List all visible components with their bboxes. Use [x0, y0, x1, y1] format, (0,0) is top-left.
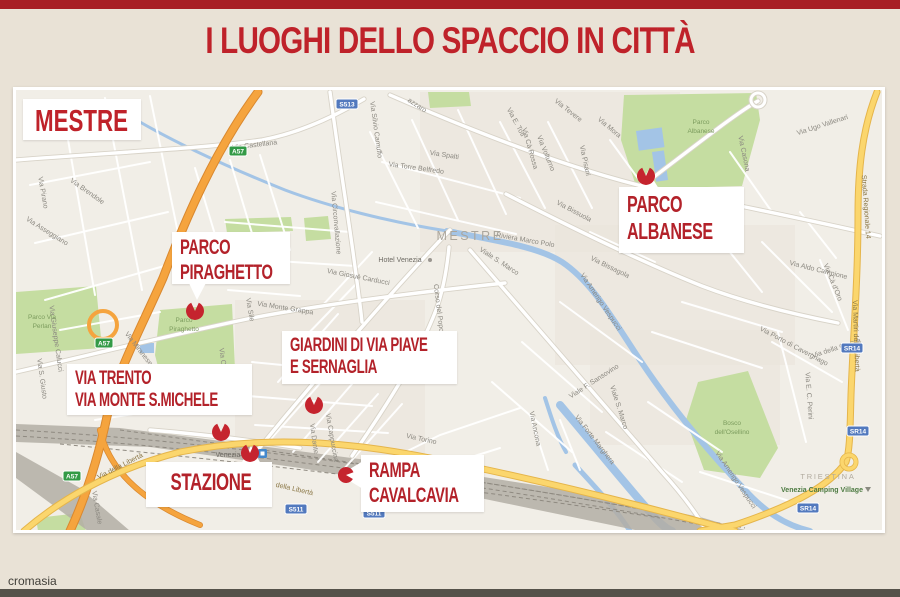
callout-rampa-cavalcavia: RAMPACAVALCAVIA [361, 455, 484, 512]
callout-text: PARCO [180, 236, 251, 261]
top-red-bar [0, 0, 900, 9]
callout-text: E SERNAGLIA [290, 357, 401, 379]
callout-text: STAZIONE [171, 469, 248, 497]
callout-stazione: STAZIONE [146, 462, 272, 507]
callout-giardini-via-piave: GIARDINI DI VIA PIAVEE SERNAGLIA [282, 331, 457, 384]
credit-text: cromasia [8, 574, 57, 588]
callout-text: PARCO [627, 191, 703, 218]
region-label: MESTRE [35, 103, 111, 139]
callout-via-trento: VIA TRENTOVIA MONTE S.MICHELE [67, 364, 252, 415]
callout-text: VIA MONTE S.MICHELE [75, 390, 193, 412]
region-label-box: MESTRE [23, 99, 141, 140]
callout-text: RAMPA [369, 459, 444, 484]
callout-layer: PARCOPIRAGHETTOPARCOALBANESEGIARDINI DI … [16, 90, 882, 530]
callout-text: VIA TRENTO [75, 368, 193, 390]
callout-text: ALBANESE [627, 218, 703, 245]
callout-parco-piraghetto: PARCOPIRAGHETTO [172, 232, 290, 284]
page-title: I LUOGHI DELLO SPACCIO IN CITTÀ [90, 20, 810, 62]
map-panel: Via CastellanaazzaroVia Silvio CamuffoVi… [13, 87, 885, 533]
callout-text: GIARDINI DI VIA PIAVE [290, 335, 401, 357]
callout-text: PIRAGHETTO [180, 261, 251, 286]
callout-parco-albanese: PARCOALBANESE [619, 187, 744, 253]
bottom-gray-bar [0, 589, 900, 597]
callout-text: CAVALCAVIA [369, 484, 444, 509]
